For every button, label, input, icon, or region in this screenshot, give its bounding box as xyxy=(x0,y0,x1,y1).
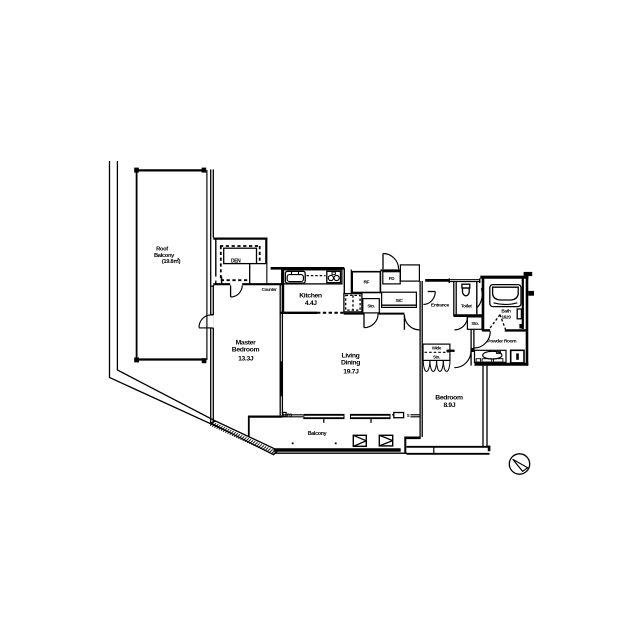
svg-text:Bath: Bath xyxy=(501,309,511,315)
svg-text:13.3J: 13.3J xyxy=(238,356,254,363)
svg-text:(19.8㎡): (19.8㎡) xyxy=(162,257,181,265)
svg-text:Entrance: Entrance xyxy=(431,302,450,308)
svg-text:Counter: Counter xyxy=(262,287,277,292)
svg-text:S: S xyxy=(407,413,410,418)
svg-text:1620: 1620 xyxy=(501,315,511,321)
svg-text:Wide: Wide xyxy=(432,346,442,351)
svg-text:Powder Room: Powder Room xyxy=(487,338,517,344)
svg-text:Living: Living xyxy=(342,352,360,359)
svg-text:Kitchen: Kitchen xyxy=(299,293,322,300)
svg-text:8.9J: 8.9J xyxy=(443,402,455,409)
svg-text:Bedroom: Bedroom xyxy=(232,347,260,354)
svg-text:19.7J: 19.7J xyxy=(343,368,359,375)
svg-text:4.4J: 4.4J xyxy=(305,300,317,307)
svg-text:Dining: Dining xyxy=(341,360,360,367)
svg-text:SIC: SIC xyxy=(396,298,404,304)
svg-text:Sto.: Sto. xyxy=(433,354,440,359)
svg-text:Toilet: Toilet xyxy=(461,304,472,310)
svg-text:Sto.: Sto. xyxy=(367,304,374,309)
svg-text:Roof: Roof xyxy=(156,247,168,253)
svg-text:RF: RF xyxy=(363,280,369,286)
svg-text:DEN: DEN xyxy=(231,258,241,264)
svg-text:Bedroom: Bedroom xyxy=(435,394,463,401)
svg-text:Sto.: Sto. xyxy=(471,321,478,326)
svg-text:Master: Master xyxy=(236,340,257,347)
svg-text:Balcony: Balcony xyxy=(308,431,327,437)
